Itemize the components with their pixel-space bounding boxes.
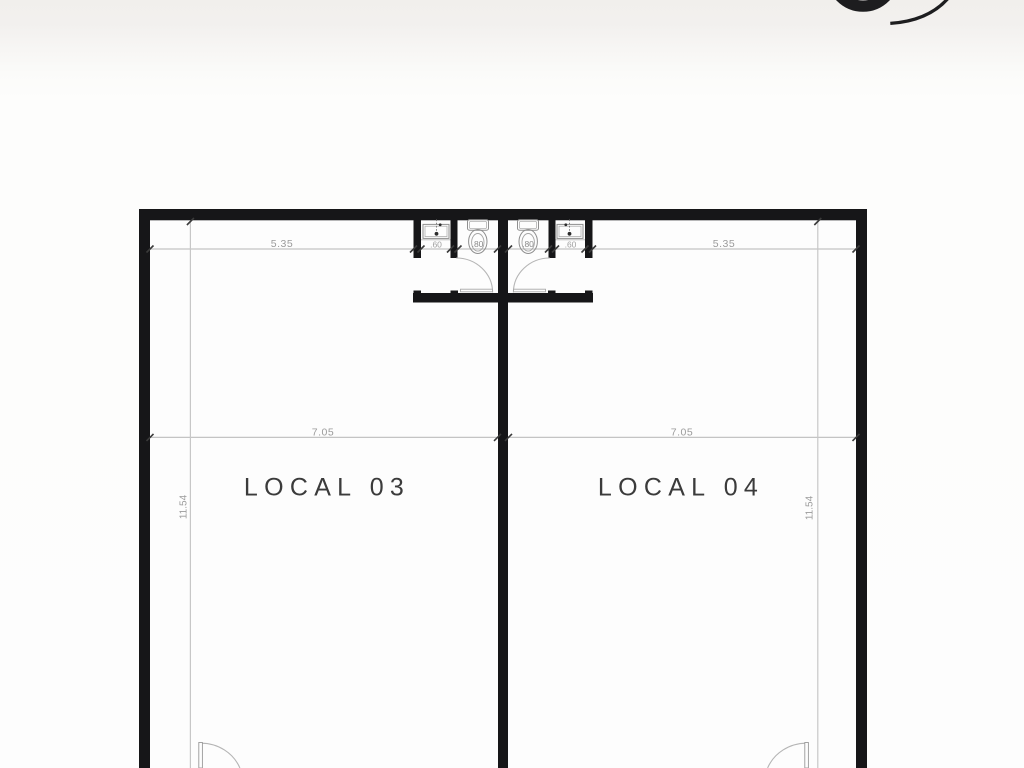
- svg-text:7.05: 7.05: [671, 427, 693, 439]
- svg-text:.80: .80: [472, 239, 484, 249]
- svg-text:5.35: 5.35: [271, 238, 293, 250]
- svg-text:.80: .80: [522, 239, 534, 249]
- svg-text:11.54: 11.54: [179, 494, 190, 519]
- svg-text:LOCAL 03: LOCAL 03: [244, 474, 410, 502]
- svg-text:.60: .60: [565, 240, 577, 250]
- svg-text:11.54: 11.54: [805, 495, 816, 520]
- svg-text:7.05: 7.05: [312, 427, 334, 439]
- svg-text:LOCAL 04: LOCAL 04: [598, 474, 764, 502]
- svg-text:.60: .60: [430, 240, 442, 250]
- svg-text:5.35: 5.35: [713, 238, 735, 250]
